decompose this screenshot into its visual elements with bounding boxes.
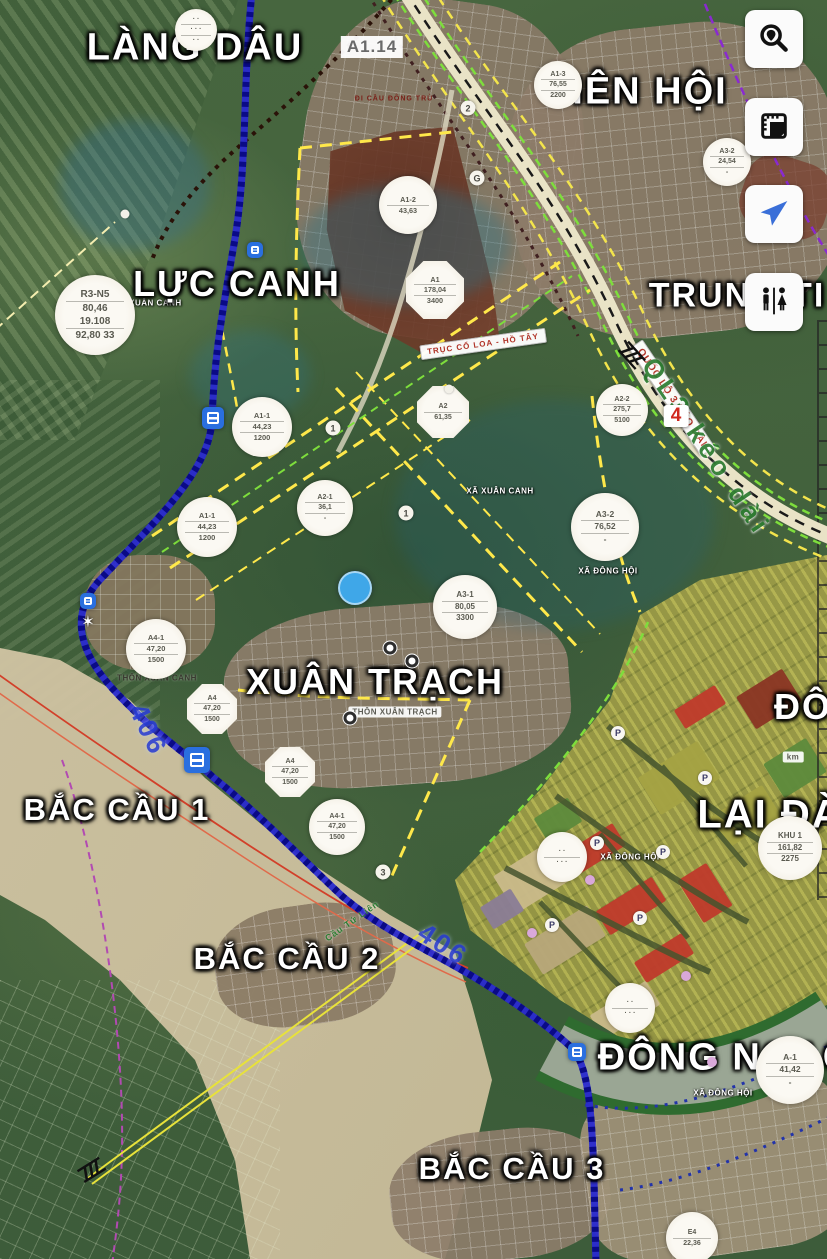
area-label: ĐI CẦU ĐÔNG TRÙ — [355, 96, 433, 103]
parking-icon: P — [656, 845, 670, 859]
transit-stop-icon — [247, 242, 263, 258]
search-location-icon — [758, 22, 790, 57]
plot-label-circle: A1178,043400 — [406, 261, 464, 319]
planning-map-button[interactable] — [745, 98, 803, 156]
map-number-badge: 3 — [376, 865, 391, 880]
area-label: XÃ ĐÔNG HỘI — [578, 567, 637, 576]
area-label: XÃ ĐÔNG HỘI — [693, 1089, 752, 1098]
plot-label-circle: A2-136,1- — [297, 480, 353, 536]
plot-label-circle: A447,201500 — [265, 747, 315, 797]
parking-icon: P — [698, 771, 712, 785]
map-dot-marker — [707, 1057, 717, 1067]
map-number-badge: 2 — [461, 101, 476, 116]
plot-label-circle: A-141,42- — [756, 1036, 824, 1104]
map-dot-marker — [445, 385, 454, 394]
plot-label-circle: A447,201500 — [187, 684, 237, 734]
restroom-finder-button[interactable] — [745, 273, 803, 331]
my-location-button[interactable] — [745, 185, 803, 243]
label-tien-hoi: IÊN HỘI — [572, 71, 727, 114]
map-dot-marker — [681, 971, 691, 981]
map-number-badge: G — [470, 171, 485, 186]
label-bac-cau-2: BẮC CẦU 2 — [194, 941, 381, 977]
search-place-button[interactable] — [745, 10, 803, 68]
parking-icon: P — [611, 726, 625, 740]
map-number-badge: 1 — [326, 421, 341, 436]
map-canvas[interactable]: XÃ XUÂN CANHXÃ XUÂN CANHXÃ ĐÔNG HỘIXÃ ĐÔ… — [0, 0, 827, 1259]
plot-label-circle: R3-N580,46 19.10892,80 33 — [55, 275, 135, 355]
ruler-document-icon — [758, 110, 790, 145]
area-label: km — [783, 752, 804, 763]
map-dot-marker — [527, 928, 537, 938]
plot-label-circle: · ·· · · — [537, 832, 587, 882]
poi-marker-icon — [343, 711, 358, 726]
plot-label-circle: A2-2275,75100 — [596, 384, 648, 436]
area-label: XÃ ĐÔNG HỘI — [600, 853, 659, 862]
parking-icon: P — [633, 911, 647, 925]
route-4-badge: 4 — [664, 405, 689, 427]
plot-label-circle: KHU 1161,822275 — [758, 816, 822, 880]
area-label: XÃ XUÂN CANH — [466, 487, 533, 496]
navigation-arrow-icon — [758, 197, 790, 232]
plot-label-circle: A1-243,63 — [379, 176, 437, 234]
label-xuan-trach: XUÂN TRẠCH — [246, 661, 504, 703]
star-marker-icon: ✶ — [81, 612, 94, 632]
parking-icon: P — [590, 836, 604, 850]
planning-boundary-green-dashed — [162, 276, 648, 852]
plot-label-circle: A3-224,54- — [703, 138, 751, 186]
plot-label-circle: A1-376,552200 — [534, 61, 582, 109]
plot-label-circle: · ·· · ·· · — [175, 9, 217, 51]
area-label: A1.14 — [341, 36, 403, 58]
poi-marker-icon — [383, 641, 398, 656]
plot-label-circle: A3-276,52- — [571, 493, 639, 561]
label-bac-cau-3: BẮC CẦU 3 — [419, 1151, 606, 1187]
label-luc-canh: LỰC CANH — [133, 263, 341, 305]
transit-stop-icon — [184, 747, 210, 773]
parking-icon: P — [545, 918, 559, 932]
plot-label-circle: A3-180,053300 — [433, 575, 497, 639]
map-number-badge: 1 — [399, 506, 414, 521]
plot-label-circle: A1-144,231200 — [232, 397, 292, 457]
plot-label-circle: A1-144,231200 — [177, 497, 237, 557]
transit-stop-icon — [568, 1043, 586, 1061]
label-bac-cau-1: BẮC CẦU 1 — [24, 792, 211, 828]
area-label: THÔN XUÂN TRẠCH — [348, 707, 441, 718]
restroom-icon — [758, 285, 790, 320]
transit-stop-icon — [202, 407, 224, 429]
plot-label-circle: · ·· · · — [605, 983, 655, 1033]
plot-label-circle: E422,36 — [666, 1212, 718, 1259]
plot-label-circle: A4-147,201500 — [309, 799, 365, 855]
map-dot-marker — [585, 875, 595, 885]
plot-label-circle: A4-147,201500 — [126, 619, 186, 679]
transit-stop-icon — [80, 593, 96, 609]
label-dong: ĐÔNG — [774, 686, 827, 728]
map-dot-marker — [121, 210, 130, 219]
poi-marker-icon — [405, 654, 420, 669]
